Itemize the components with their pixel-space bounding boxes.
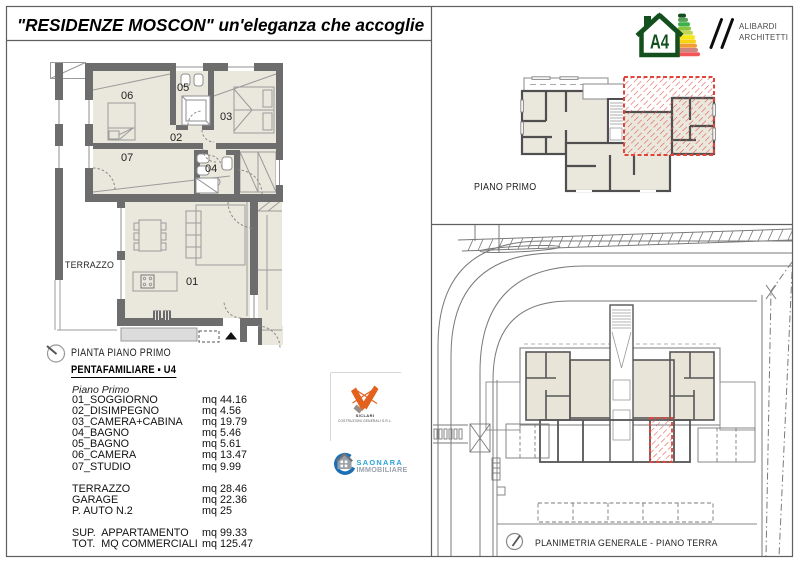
svg-text:06: 06 — [121, 90, 133, 102]
svg-text:03: 03 — [220, 111, 232, 123]
svg-text:A4: A4 — [650, 32, 670, 54]
svg-text:05: 05 — [177, 82, 189, 94]
svg-text:02: 02 — [170, 132, 182, 144]
svg-text:07: 07 — [121, 152, 133, 164]
svg-text:04: 04 — [205, 163, 217, 175]
svg-text:TERRAZZO: TERRAZZO — [65, 260, 114, 270]
svg-text:01: 01 — [186, 276, 198, 288]
